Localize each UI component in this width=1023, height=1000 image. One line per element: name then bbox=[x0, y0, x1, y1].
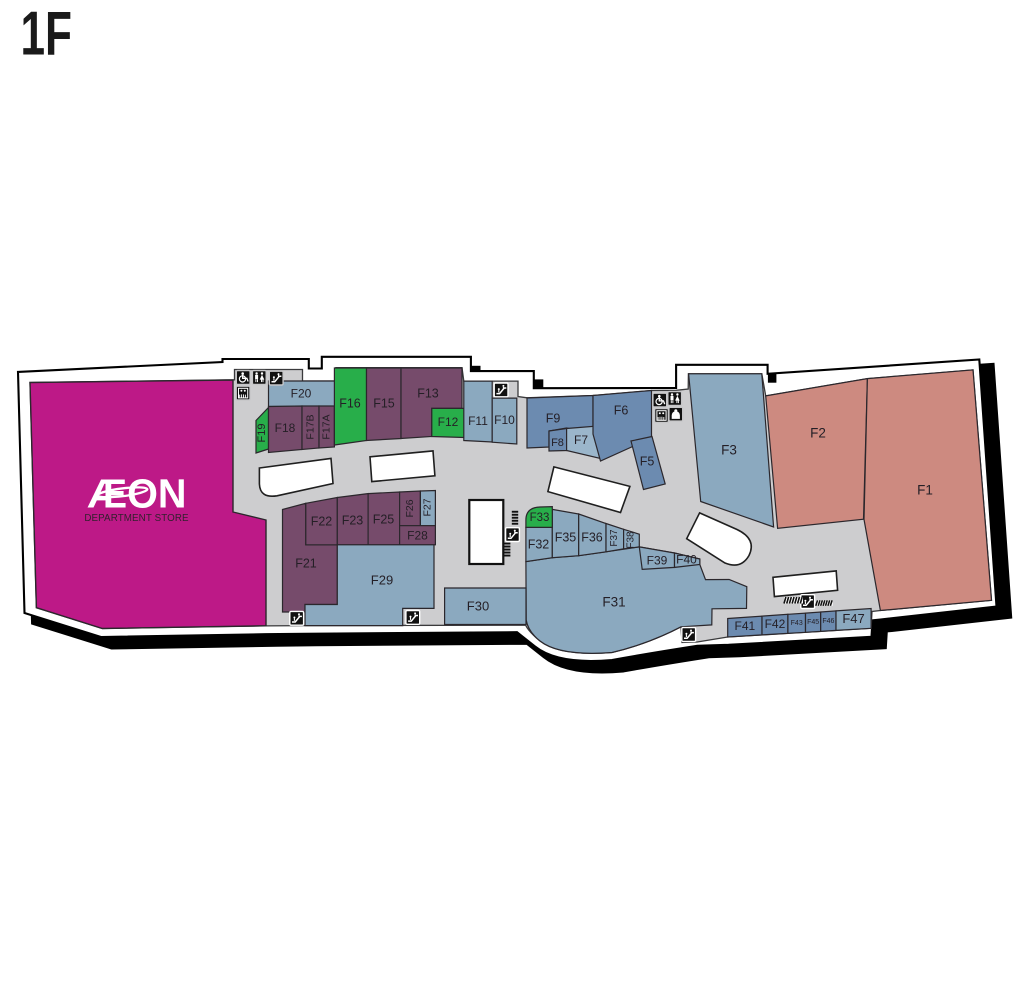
svg-text:F22: F22 bbox=[311, 514, 333, 528]
svg-text:F1: F1 bbox=[917, 483, 933, 498]
svg-text:F35: F35 bbox=[555, 530, 577, 544]
svg-text:F30: F30 bbox=[467, 598, 489, 613]
svg-text:F16: F16 bbox=[339, 396, 361, 410]
svg-text:ÆON: ÆON bbox=[88, 471, 187, 517]
svg-text:F21: F21 bbox=[295, 556, 317, 570]
svg-text:F12: F12 bbox=[438, 415, 459, 429]
svg-text:F15: F15 bbox=[373, 396, 395, 410]
svg-text:F31: F31 bbox=[602, 595, 625, 610]
svg-text:F39: F39 bbox=[647, 554, 668, 568]
svg-text:F27: F27 bbox=[421, 498, 433, 516]
svg-text:F9: F9 bbox=[546, 411, 561, 425]
svg-text:F6: F6 bbox=[614, 403, 629, 417]
svg-text:F7: F7 bbox=[574, 433, 588, 447]
svg-text:F8: F8 bbox=[551, 437, 564, 449]
svg-text:F3: F3 bbox=[721, 443, 737, 458]
svg-text:F5: F5 bbox=[640, 454, 655, 468]
svg-text:F32: F32 bbox=[528, 537, 550, 551]
svg-text:F18: F18 bbox=[275, 421, 296, 435]
svg-text:F37: F37 bbox=[609, 529, 620, 547]
svg-text:F17B: F17B bbox=[304, 414, 316, 439]
svg-text:F11: F11 bbox=[468, 414, 488, 428]
svg-text:F28: F28 bbox=[407, 529, 428, 543]
svg-text:F47: F47 bbox=[842, 611, 864, 626]
svg-text:F10: F10 bbox=[494, 413, 515, 427]
svg-text:F38: F38 bbox=[626, 531, 637, 549]
svg-text:F20: F20 bbox=[291, 387, 312, 401]
svg-text:F42: F42 bbox=[765, 617, 786, 631]
svg-text:F40: F40 bbox=[676, 553, 697, 567]
svg-text:F46: F46 bbox=[822, 618, 834, 625]
svg-text:F13: F13 bbox=[417, 386, 439, 400]
svg-text:F43: F43 bbox=[791, 620, 803, 627]
svg-text:F41: F41 bbox=[735, 619, 756, 633]
svg-text:F33: F33 bbox=[530, 512, 550, 524]
svg-text:F26: F26 bbox=[404, 499, 416, 517]
svg-text:F17A: F17A bbox=[320, 414, 332, 439]
svg-text:1F: 1F bbox=[21, 0, 73, 69]
svg-text:F29: F29 bbox=[371, 572, 393, 587]
svg-text:F2: F2 bbox=[810, 426, 826, 441]
svg-text:F25: F25 bbox=[373, 512, 395, 526]
svg-text:DEPARTMENT STORE: DEPARTMENT STORE bbox=[84, 513, 189, 524]
svg-text:F45: F45 bbox=[807, 619, 819, 626]
svg-text:F36: F36 bbox=[581, 530, 603, 544]
svg-text:F23: F23 bbox=[342, 513, 364, 527]
svg-text:F19: F19 bbox=[256, 424, 268, 443]
